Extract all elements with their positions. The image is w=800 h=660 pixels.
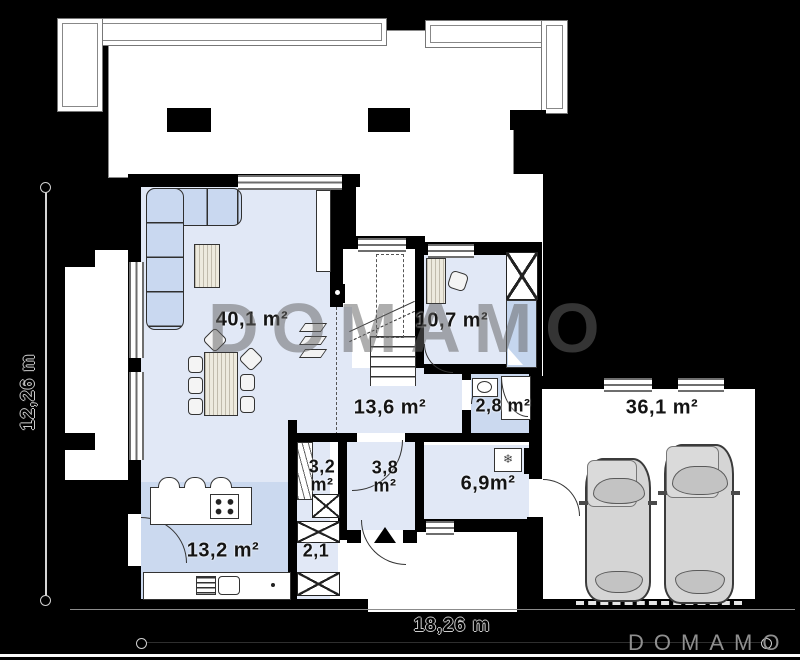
knob-dot [271, 583, 275, 587]
room-area-label-kitchen: 13,2 m² [187, 540, 259, 563]
tv-unit [316, 190, 331, 272]
window [428, 244, 474, 258]
bath-sink-bowl [477, 381, 492, 393]
freezer: ❄ [494, 448, 522, 472]
freezer-icon: ❄ [503, 452, 513, 466]
car-mirror [658, 491, 667, 495]
room-area-label-office: 10,7 m² [416, 310, 488, 333]
sink-bowl-icon [218, 576, 240, 595]
room-area-label-closet: 2,1 [303, 541, 330, 562]
dining-chair [240, 374, 255, 391]
wall-jog [65, 433, 95, 450]
window [426, 521, 454, 535]
car-mirror [648, 501, 657, 505]
dining-chair [188, 377, 203, 394]
car [585, 458, 651, 602]
office-desk [426, 258, 446, 304]
sink-icon [196, 576, 216, 595]
wall-vest-bottom-l [347, 530, 361, 543]
terrace-railing-right-side [541, 20, 568, 114]
wall-vest-utility [415, 433, 424, 532]
dining-chair [188, 398, 203, 415]
water-heater [524, 448, 533, 474]
terrace-railing-left-side [57, 18, 103, 112]
wall-garage-top [540, 376, 768, 389]
car [664, 444, 734, 604]
floor-plan: ❄ 40,1 m² 10,7 m² 13,6 m² 2,8 m² 3,2 m² … [0, 0, 800, 660]
window [678, 378, 724, 392]
coffee-table [194, 244, 220, 288]
bar-stool [210, 477, 232, 488]
cabinet-fold [508, 348, 523, 365]
wardrobe [297, 572, 340, 596]
slab-corner [510, 110, 546, 130]
kitchen-counter [143, 572, 291, 600]
wall-link [343, 180, 356, 240]
window [129, 372, 144, 460]
window [129, 262, 144, 358]
dining-chair [188, 356, 203, 373]
entrance-arrow-icon [374, 527, 396, 543]
door-opening [128, 514, 141, 566]
porch-edge [517, 532, 527, 612]
room-area-label-bathroom: 2,8 m² [475, 396, 530, 417]
wall-bottom-main [128, 599, 368, 612]
window [238, 175, 342, 190]
dimension-label-width: 18,26 m [414, 615, 491, 637]
wall-hall-bottom [288, 433, 540, 442]
open-ceiling-line [336, 307, 337, 435]
fireplace-dot [335, 290, 340, 295]
bar-stool [184, 477, 206, 488]
car-windshield [672, 466, 728, 495]
terrace-railing-left-top [57, 18, 387, 46]
wardrobe [312, 494, 340, 518]
dimension-line-bottom-edge [70, 609, 795, 610]
wardrobe [506, 252, 538, 300]
car-rear-window [595, 571, 643, 593]
dimension-label-height: 12,26 m [18, 354, 40, 431]
car-rear-window [675, 570, 726, 594]
pillar [368, 108, 410, 132]
room-area-label-vestibule: 3,8 m² [366, 459, 404, 496]
window [358, 238, 406, 252]
room-area-label-hall: 13,6 m² [354, 397, 426, 420]
room-area-label-pantry: 3,2 m² [303, 458, 341, 495]
dimension-endpoint [40, 595, 51, 606]
dimension-endpoint [40, 182, 51, 193]
dining-chair [240, 396, 255, 413]
window [604, 378, 652, 392]
bar-stool [158, 477, 180, 488]
dining-table [204, 352, 238, 416]
door-opening [529, 479, 542, 517]
dimension-line-left [45, 188, 47, 598]
door-opening [462, 380, 471, 410]
dimension-endpoint [136, 638, 147, 649]
stairs-treads [370, 336, 416, 386]
car-mirror [579, 501, 588, 505]
room-area-label-garage: 36,1 m² [626, 397, 698, 420]
wall-garage-right [755, 376, 768, 612]
brand-logo: DOMAMO [628, 630, 789, 656]
room-area-label-utility: 6,9m² [461, 473, 516, 496]
sofa-vertical [146, 188, 184, 330]
stove-icon [210, 494, 239, 519]
wall-jog [65, 250, 95, 267]
room-area-label-living: 40,1 m² [216, 309, 288, 332]
pillar [167, 108, 211, 132]
car-mirror [731, 491, 740, 495]
room-living-ext [330, 307, 352, 437]
car-windshield [593, 478, 646, 504]
